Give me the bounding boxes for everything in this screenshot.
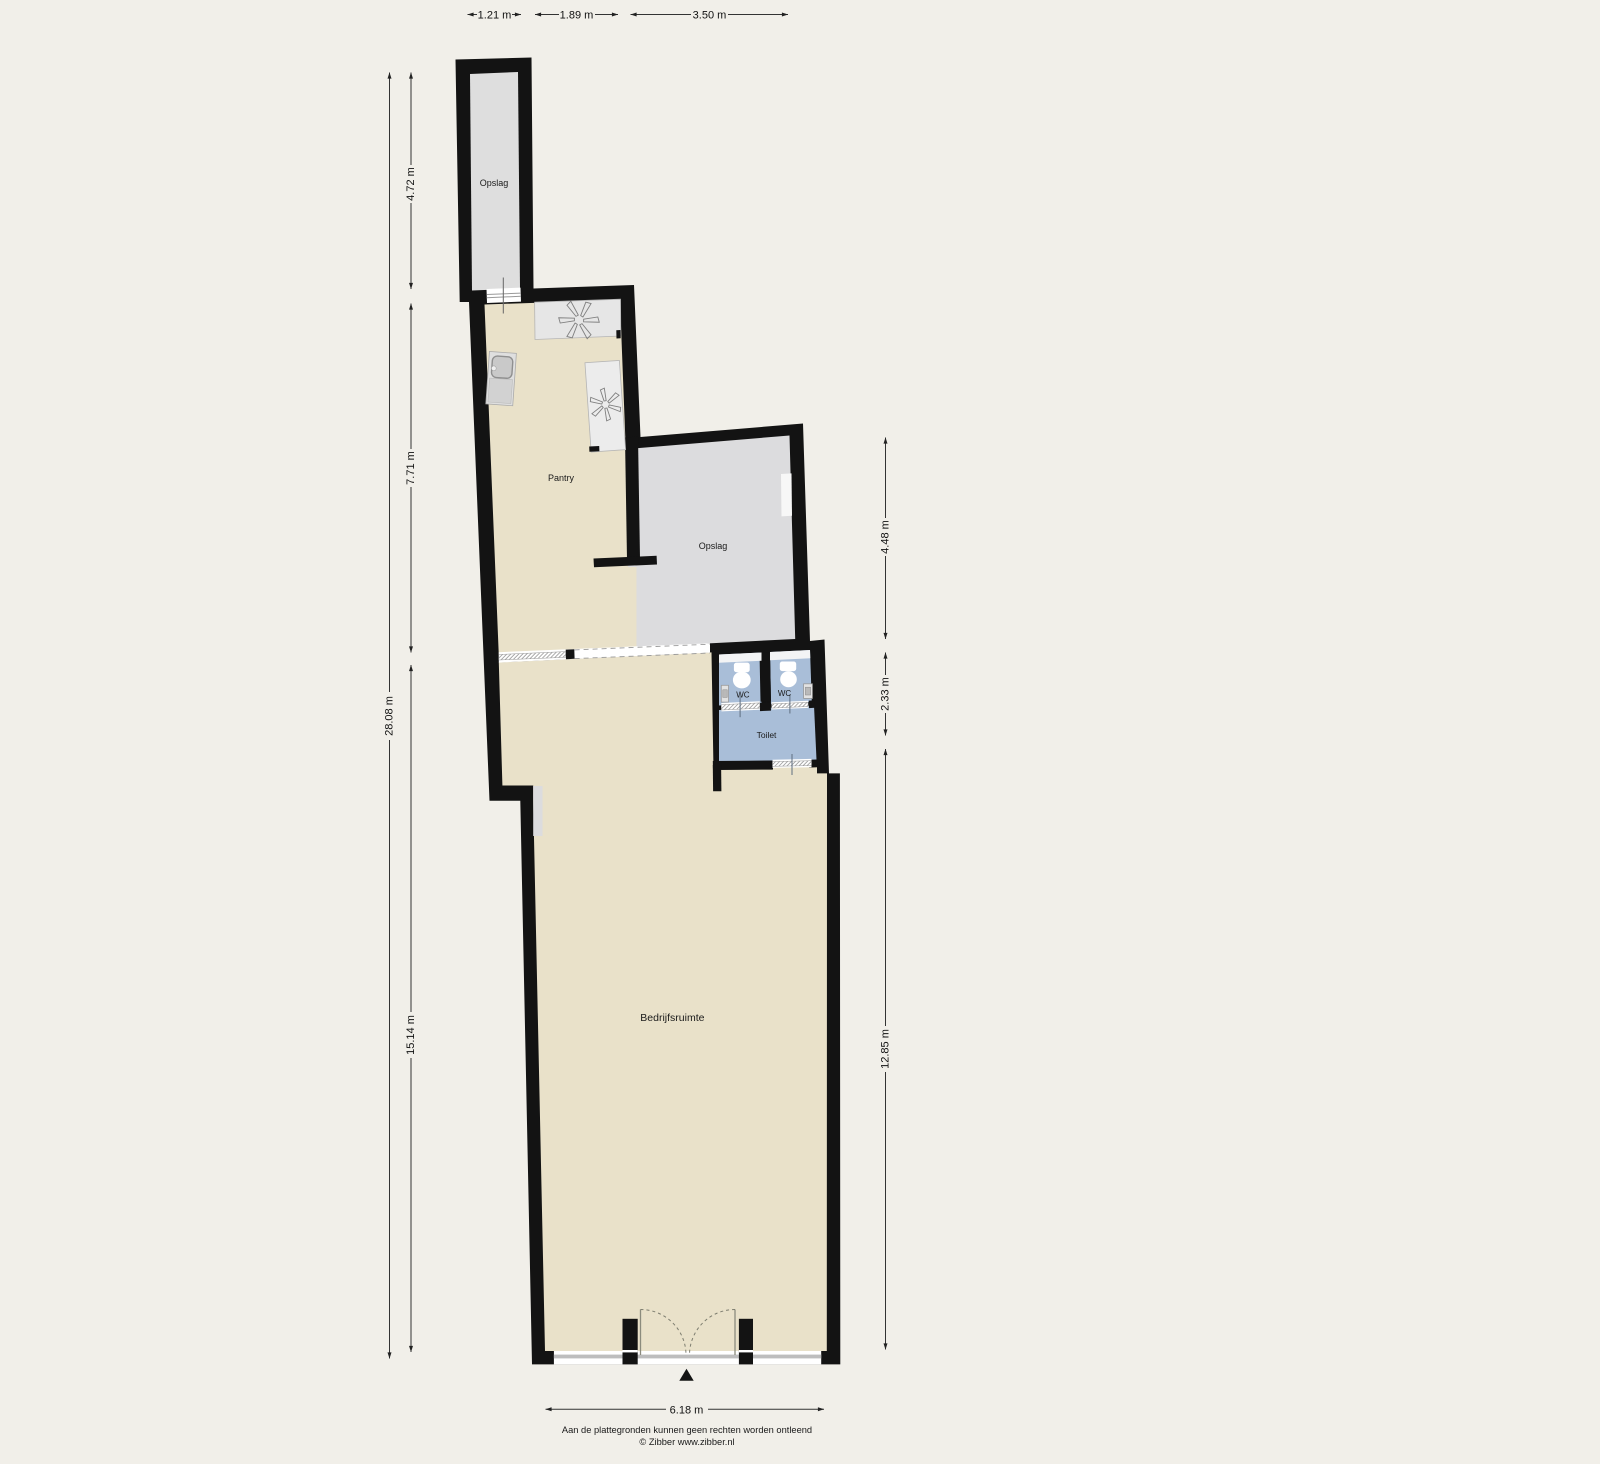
- svg-text:12.85 m: 12.85 m: [879, 1029, 891, 1069]
- svg-text:1.89 m: 1.89 m: [560, 10, 594, 22]
- svg-text:Opslag: Opslag: [699, 541, 728, 551]
- svg-text:7.71 m: 7.71 m: [405, 451, 417, 485]
- svg-text:WC: WC: [778, 689, 792, 698]
- svg-text:4.72 m: 4.72 m: [405, 167, 417, 201]
- svg-text:6.18 m: 6.18 m: [670, 1404, 704, 1416]
- svg-text:15.14 m: 15.14 m: [405, 1015, 417, 1055]
- svg-text:Bedrijfsruimte: Bedrijfsruimte: [640, 1012, 704, 1024]
- svg-text:Pantry: Pantry: [548, 473, 575, 483]
- svg-text:2.33 m: 2.33 m: [879, 677, 891, 711]
- svg-text:Aan de plattegronden kunnen ge: Aan de plattegronden kunnen geen rechten…: [562, 1425, 812, 1435]
- svg-text:© Zibber www.zibber.nl: © Zibber www.zibber.nl: [639, 1437, 734, 1447]
- svg-text:28.08 m: 28.08 m: [383, 696, 395, 736]
- svg-text:WC: WC: [736, 691, 750, 700]
- svg-text:Opslag: Opslag: [480, 178, 509, 188]
- svg-text:Toilet: Toilet: [757, 730, 777, 740]
- svg-text:1.21 m: 1.21 m: [478, 10, 512, 22]
- svg-text:3.50 m: 3.50 m: [693, 10, 727, 22]
- svg-text:4.48 m: 4.48 m: [879, 520, 891, 554]
